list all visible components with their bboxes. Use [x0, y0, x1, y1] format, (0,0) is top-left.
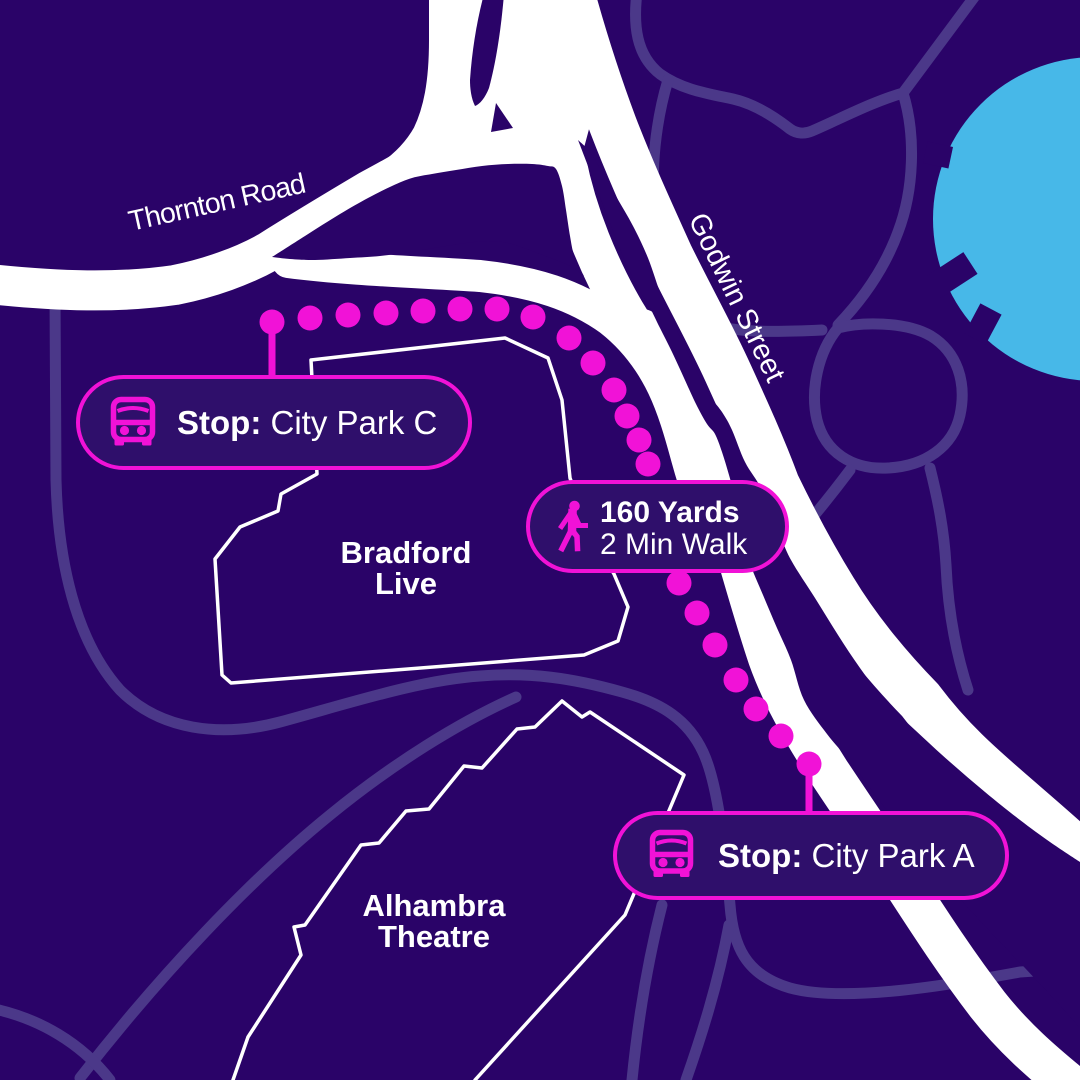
- svg-text:Stop: City Park C: Stop: City Park C: [177, 404, 437, 441]
- svg-text:Theatre: Theatre: [378, 919, 490, 954]
- svg-text:Stop: City Park A: Stop: City Park A: [718, 837, 975, 874]
- svg-text:Alhambra: Alhambra: [363, 888, 507, 923]
- svg-text:Bradford: Bradford: [341, 535, 472, 570]
- svg-text:2 Min Walk: 2 Min Walk: [600, 528, 748, 561]
- svg-text:Live: Live: [375, 566, 437, 601]
- svg-text:160 Yards: 160 Yards: [600, 496, 740, 529]
